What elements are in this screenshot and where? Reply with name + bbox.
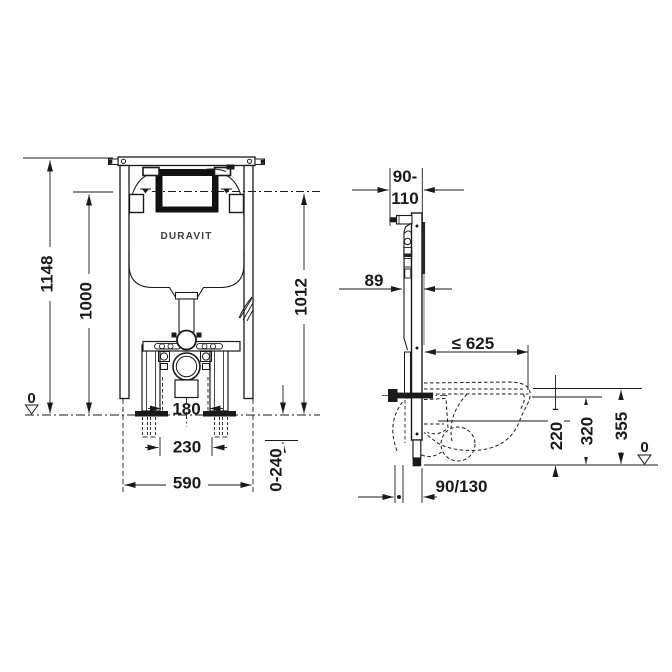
side-outlet-height-label: 220 xyxy=(547,422,566,450)
cistern-bottom xyxy=(129,250,244,297)
side-wall-distance-label-line1: 90- xyxy=(393,167,418,186)
frame-left-rail xyxy=(120,166,129,399)
drain-bend xyxy=(393,400,475,461)
front-anchor-spacing-label: 230 xyxy=(173,438,201,457)
installation-drawing: DURAVIT 1148 1000 1012 0 180 230 590 0-2… xyxy=(0,0,672,672)
frame-right-rail xyxy=(244,166,253,399)
side-view-dimensions xyxy=(339,168,658,503)
cistern-head xyxy=(129,165,244,218)
side-outlet-offset-label: 90/130 xyxy=(436,477,488,496)
front-total-height-label: 1148 xyxy=(38,256,57,293)
front-actuation-height-label: 1000 xyxy=(77,282,96,320)
front-outlet-width-label: 180 xyxy=(172,400,200,419)
frame-top-rail xyxy=(109,157,265,166)
side-floor-zero-label: 0 xyxy=(640,439,648,456)
front-foot-adjustment-label: 0-240 xyxy=(267,448,286,491)
front-anchor-height-label: 1012 xyxy=(292,278,311,316)
side-frame-depth-label: 89 xyxy=(365,271,384,290)
side-wall-distance-label-line2: 110 xyxy=(391,189,418,208)
front-floor-zero-label: 0 xyxy=(27,390,35,407)
cistern-side-profile xyxy=(404,223,412,398)
datum-triangle-right xyxy=(638,455,651,464)
duravit-logo: DURAVIT xyxy=(160,231,212,242)
front-view xyxy=(109,157,265,437)
toilet-bowl-outline xyxy=(424,382,530,451)
side-rim-height-label: 320 xyxy=(578,417,597,445)
side-frame-rail xyxy=(412,213,426,440)
side-frame-foot xyxy=(413,440,422,466)
water-connection xyxy=(390,216,413,225)
drain-outlet xyxy=(173,353,200,380)
side-max-depth-label: ≤ 625 xyxy=(452,334,494,353)
front-frame-width-label: 590 xyxy=(173,474,201,493)
side-top-edge-height-label: 355 xyxy=(612,412,631,440)
technical-drawing-page: DURAVIT 1148 1000 1012 0 180 230 590 0-2… xyxy=(0,0,672,672)
